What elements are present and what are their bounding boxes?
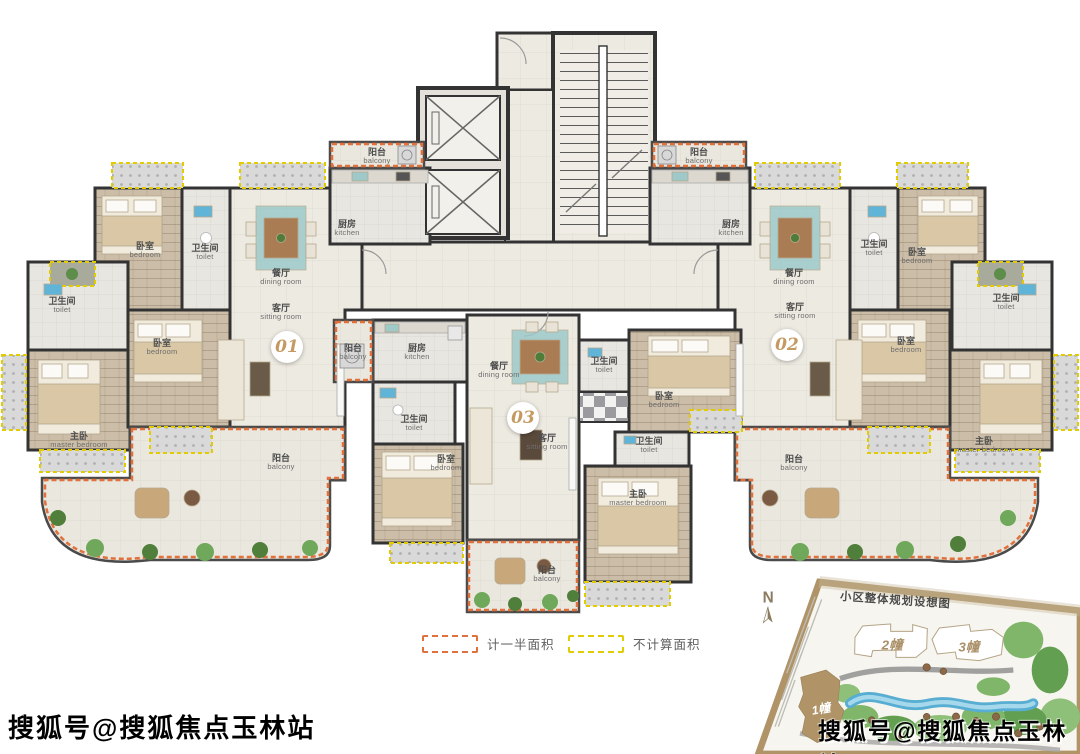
legend-excluded-area: 不计算面积 [568,634,701,653]
room-label: 卧室bedroom [648,391,679,409]
unit-badge-03: 03 [507,402,539,434]
coffee-table [810,362,830,396]
sofa [470,408,492,484]
staircase [560,46,648,236]
room-label: 卧室bedroom [129,241,160,259]
compass: N [763,590,774,623]
room-label: 餐厅dining room [478,361,519,379]
kitchen-counter [652,170,748,183]
legend-half-area: 计一半面积 [422,634,555,653]
floor-plan-page: N [0,0,1080,754]
watermark-bottom-right: 搜狐号@搜狐焦点玉林站 [818,712,1080,754]
lift-lobby [505,90,553,242]
room-label: 阳台balcony [780,454,807,472]
room-label: 卫生间toilet [992,293,1019,311]
bed [648,336,730,396]
coffee-table [250,362,270,396]
room-label: 卧室bedroom [146,338,177,356]
room-label: 客厅sitting room [260,303,301,321]
room-label: 卫生间toilet [860,239,887,257]
room-label: 阳台balcony [685,147,712,165]
sofa [218,340,244,420]
compass-n: N [763,590,774,607]
sofa [836,340,862,420]
unit-badge-01: 01 [271,331,303,363]
room-label: 阳台balcony [267,453,294,471]
room-label: 餐厅dining room [773,268,814,286]
watermark-bottom-left: 搜狐号@搜狐焦点玉林站 [8,708,315,745]
entry-hall [362,242,718,310]
bed [918,196,978,254]
room-label: 阳台balcony [339,343,366,361]
room-label: 厨房kitchen [404,343,429,361]
room-label: 客厅sitting room [774,302,815,320]
checkered-hall-03 [579,392,629,422]
kitchen-counter [332,170,428,183]
legend-excluded-area-label: 不计算面积 [633,634,701,653]
room-label: 餐厅dining room [260,268,301,286]
room-label: 卧室bedroom [901,247,932,265]
room-label: 阳台balcony [533,565,560,583]
dining-set [246,206,316,270]
room-label: 卫生间toilet [191,243,218,261]
legend-half-area-label: 计一半面积 [487,634,555,653]
room-label: 卫生间toilet [635,436,662,454]
room-label: 主卧master bedroom [50,431,107,449]
room-label: 卧室bedroom [890,336,921,354]
room-label: 主卧master bedroom [955,436,1012,454]
room-label: 阳台balcony [363,147,390,165]
unit-badge-02: 02 [771,329,803,361]
room-label: 主卧master bedroom [609,489,666,507]
building-2-label: 2幢 [881,637,905,652]
bed [38,360,100,434]
room-label: 客厅sitting room [526,433,567,451]
dining-set [512,322,568,392]
bed [980,360,1042,434]
legend-excluded-area-swatch [568,635,624,653]
tv-console [569,418,576,490]
legend-half-area-swatch [422,635,478,653]
room-label: 卫生间toilet [48,296,75,314]
dining-set [760,206,830,270]
room-label: 厨房kitchen [334,219,359,237]
room-label: 厨房kitchen [718,219,743,237]
building-3-label: 3幢 [958,640,981,655]
room-label: 卫生间toilet [400,414,427,432]
room-label: 卧室bedroom [430,454,461,472]
tv-console [736,344,743,416]
room-label: 卫生间toilet [590,356,617,374]
